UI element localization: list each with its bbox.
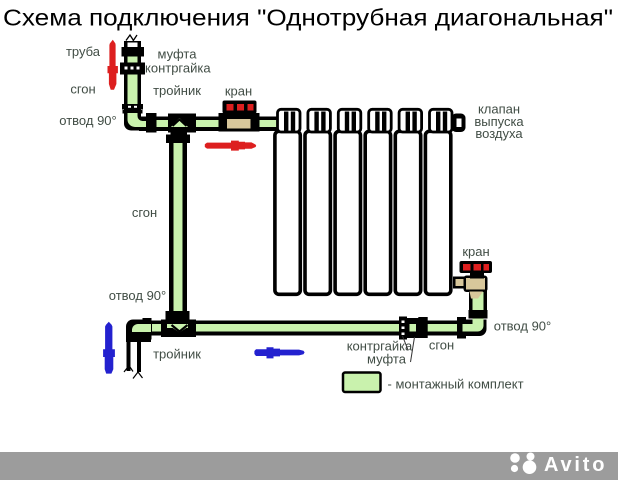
svg-text:кран: кран (462, 244, 489, 259)
svg-text:кран: кран (225, 84, 252, 99)
svg-text:- монтажный комплект: - монтажный комплект (388, 377, 524, 392)
svg-text:сгон: сгон (429, 338, 454, 353)
svg-text:тройник: тройник (153, 83, 201, 98)
svg-text:отвод 90°: отвод 90° (59, 113, 116, 128)
svg-text:сгон: сгон (132, 205, 157, 220)
svg-text:отвод 90°: отвод 90° (494, 319, 551, 334)
svg-text:труба: труба (66, 44, 101, 59)
svg-text:тройник: тройник (153, 347, 201, 362)
svg-text:муфта: муфта (158, 47, 198, 62)
svg-text:сгон: сгон (70, 82, 95, 97)
svg-text:отвод 90°: отвод 90° (109, 288, 166, 303)
svg-text:Схема подключения "Однотрубная: Схема подключения "Однотрубная диагональ… (3, 5, 613, 31)
svg-text:воздуха: воздуха (475, 126, 523, 141)
svg-text:контргайка: контргайка (145, 61, 211, 76)
svg-text:Avito: Avito (544, 454, 607, 476)
svg-text:муфта: муфта (367, 352, 407, 367)
